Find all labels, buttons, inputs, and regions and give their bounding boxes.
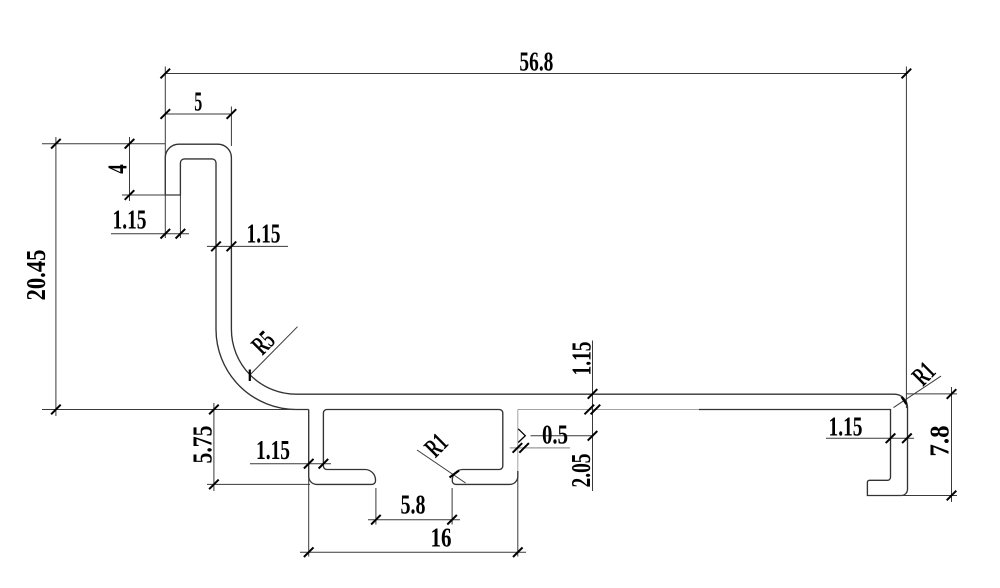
svg-text:5: 5 <box>194 86 202 116</box>
svg-text:1.15: 1.15 <box>256 435 290 465</box>
svg-text:5.75: 5.75 <box>188 426 218 464</box>
svg-text:20.45: 20.45 <box>21 250 51 301</box>
svg-text:16: 16 <box>431 523 452 553</box>
svg-text:5.8: 5.8 <box>401 490 426 520</box>
svg-text:4: 4 <box>103 164 133 174</box>
svg-text:1.15: 1.15 <box>567 342 597 376</box>
svg-text:1.15: 1.15 <box>113 205 147 235</box>
svg-text:0.5: 0.5 <box>542 420 568 450</box>
svg-text:1.15: 1.15 <box>829 412 863 442</box>
svg-text:1.15: 1.15 <box>247 219 281 249</box>
svg-text:2.05: 2.05 <box>566 454 596 488</box>
svg-text:7.8: 7.8 <box>925 426 955 457</box>
svg-text:56.8: 56.8 <box>519 47 553 77</box>
